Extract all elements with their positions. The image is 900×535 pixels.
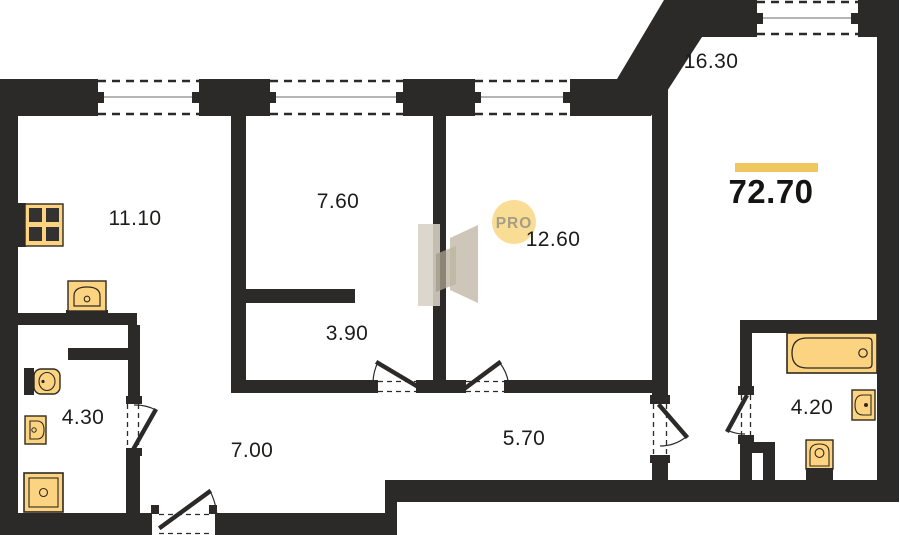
washing-machine-icon xyxy=(24,473,63,512)
room-area-label-3-90: 3.90 xyxy=(326,322,368,346)
watermark-logo xyxy=(418,224,478,306)
bathtub-icon xyxy=(787,333,877,373)
toilet-icon-bath1 xyxy=(24,368,60,395)
stove-icon xyxy=(18,203,63,247)
room-area-label-4-30: 4.30 xyxy=(62,406,104,430)
room-area-label-7-60: 7.60 xyxy=(317,190,359,214)
hand-sink-icon xyxy=(25,416,46,444)
room-area-label-5-70: 5.70 xyxy=(503,427,545,451)
kitchen-sink-icon xyxy=(68,281,106,311)
floor-plan: PRO 11.10 7.60 12.60 16.30 3.90 4.30 7.0… xyxy=(0,0,900,535)
floor-plan-svg: PRO xyxy=(0,0,900,535)
total-area-label: 72.70 xyxy=(728,173,813,211)
bathroom-sink-icon xyxy=(852,390,875,420)
area-underline xyxy=(735,163,818,172)
toilet-icon-bath2 xyxy=(806,440,833,483)
room-area-label-11-10: 11.10 xyxy=(109,207,162,231)
room-area-label-16-30: 16.30 xyxy=(684,50,739,74)
room-area-label-12-60: 12.60 xyxy=(526,228,581,252)
room-area-label-4-20: 4.20 xyxy=(791,396,833,420)
room-area-label-7-00: 7.00 xyxy=(231,439,273,463)
